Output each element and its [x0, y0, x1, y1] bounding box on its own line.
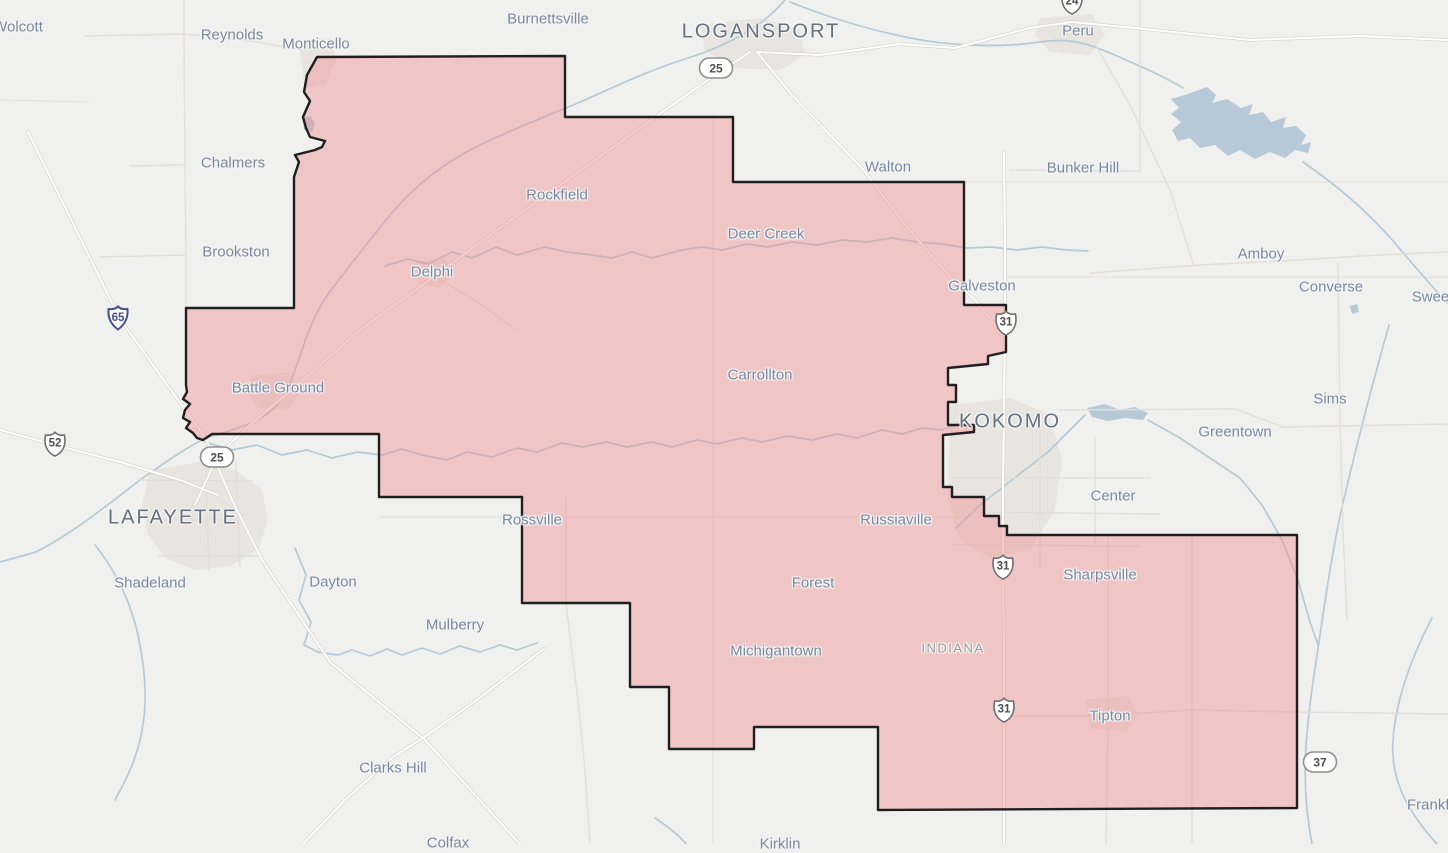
district-overlay-layer — [0, 0, 1448, 844]
district-region[interactable] — [183, 56, 1297, 810]
map-canvas[interactable]: WolcottReynoldsMonticelloBurnettsvilleLO… — [0, 0, 1448, 844]
